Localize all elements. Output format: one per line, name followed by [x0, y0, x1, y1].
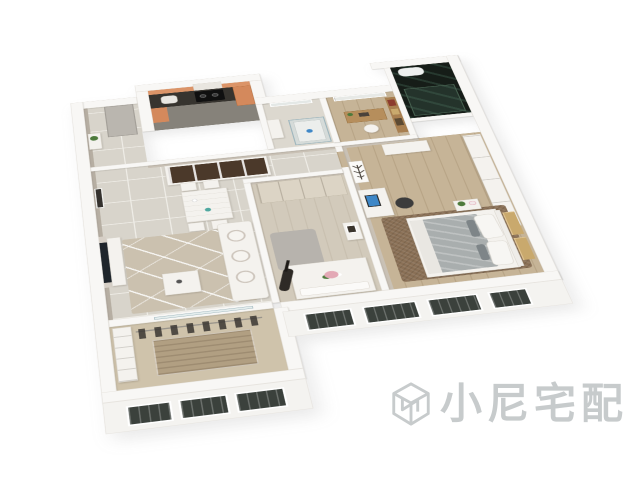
bench-picture — [346, 225, 358, 234]
dining-chair-1 — [180, 182, 197, 191]
dining-table — [181, 187, 233, 222]
apartment-3d-model — [47, 53, 640, 462]
kitchen-cabinet-left — [151, 107, 169, 123]
dining-chair-2 — [203, 180, 220, 189]
entry-door — [104, 104, 138, 137]
floorplan-render: 小尼宅配 — [0, 0, 640, 480]
coffee-table — [162, 270, 202, 295]
